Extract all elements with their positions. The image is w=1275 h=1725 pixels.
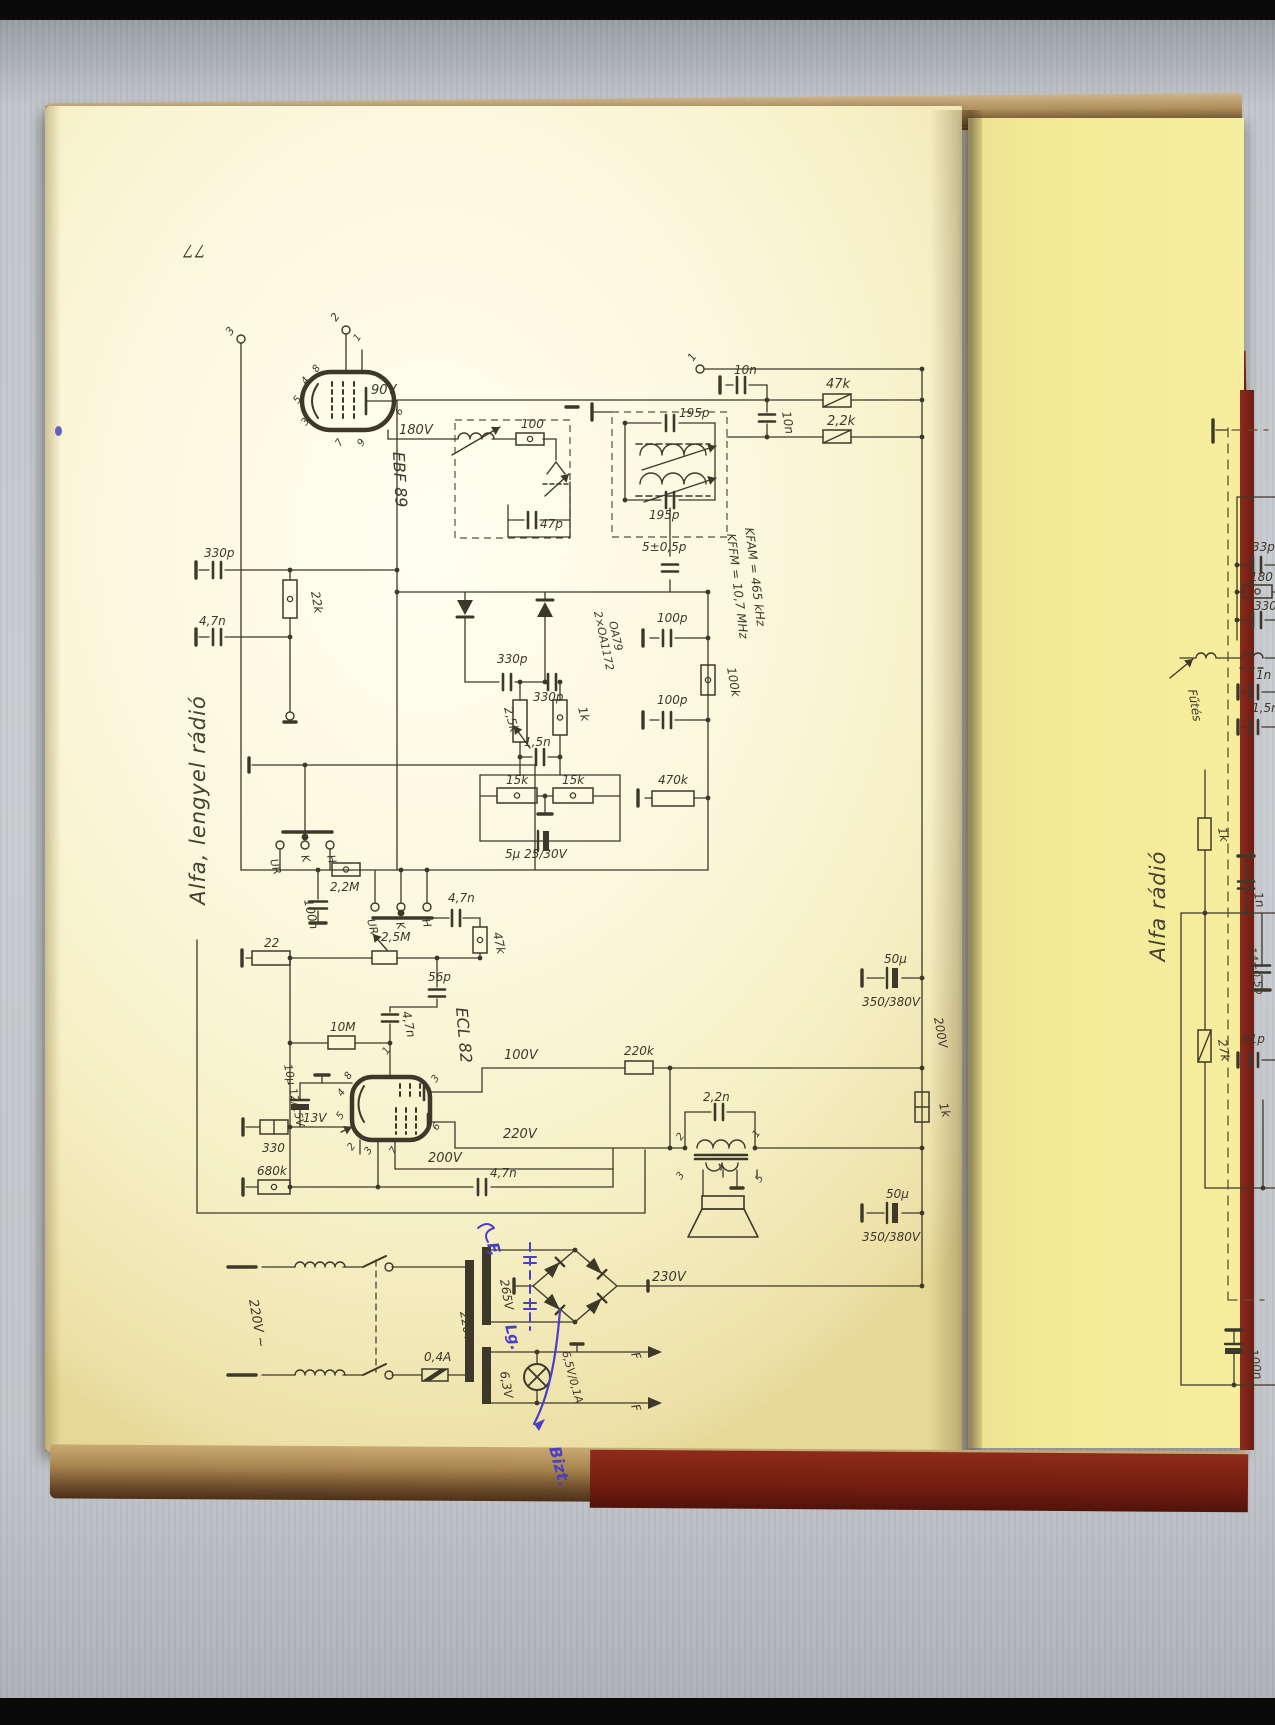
junction-dot <box>518 680 523 685</box>
junction-dot <box>1235 590 1240 595</box>
electrolytic <box>892 968 898 988</box>
schematic-label: 5±0,5p <box>642 540 687 554</box>
schematic-label: 1k <box>936 1101 954 1120</box>
resistor <box>497 788 537 803</box>
schematic-label: 22k <box>308 590 326 615</box>
speaker <box>702 1196 744 1209</box>
symbol <box>295 1370 345 1375</box>
symbol <box>640 444 706 455</box>
symbol <box>457 600 473 615</box>
schematic-label: 1n <box>1251 891 1267 908</box>
schematic-label: 180V <box>399 423 434 438</box>
schematic-label: 330p <box>533 690 564 704</box>
junction-dot <box>920 1284 925 1289</box>
handwritten-note: F, <box>483 1240 505 1258</box>
schematic-label: ECL 82 <box>452 1007 476 1064</box>
terminal <box>237 335 245 343</box>
schematic-label: 10M <box>330 1020 356 1034</box>
wire <box>363 1364 386 1375</box>
resistor <box>271 1184 276 1189</box>
symbol <box>688 1209 758 1237</box>
junction-dot <box>518 755 523 760</box>
schematic-label: 100V <box>504 1048 539 1063</box>
handwritten-note: Bizt. <box>545 1444 574 1488</box>
schematic-label: 0,4A <box>424 1350 451 1364</box>
schematic-label: 90V <box>371 383 398 398</box>
symbol <box>697 1140 745 1148</box>
symbol <box>544 1262 560 1278</box>
junction-dot <box>920 1211 925 1216</box>
schematic-label: 6,3V <box>497 1370 516 1400</box>
schematic-label: 7 <box>333 437 346 449</box>
terminal <box>326 841 334 849</box>
schematic-label: 2,5k <box>501 705 522 735</box>
resistor <box>652 791 694 806</box>
junction-dot <box>920 976 925 981</box>
schematic-label: Fűtés <box>1185 688 1204 722</box>
junction-dot <box>425 868 430 873</box>
symbol <box>534 1310 560 1424</box>
junction-dot <box>920 398 925 403</box>
symbol <box>312 384 318 418</box>
wire <box>823 394 851 407</box>
schematic-label: 4,7n <box>399 1010 418 1039</box>
schematic-label: 6 <box>393 406 406 418</box>
junction-dot <box>683 1146 688 1151</box>
schematic-label: 27k <box>1215 1038 1233 1063</box>
terminal <box>276 841 284 849</box>
symbol <box>295 1262 345 1267</box>
schematic-label: 200V <box>428 1151 463 1166</box>
schematic-label: 2 <box>345 1141 358 1153</box>
schematic-label: 10n <box>779 410 797 435</box>
junction-dot <box>1203 911 1208 916</box>
schematic-label: 200V <box>931 1016 950 1050</box>
junction-dot <box>395 590 400 595</box>
schematic-label: 350/380V <box>862 1230 921 1244</box>
schematic-label: 2,2M <box>330 880 360 894</box>
junction-dot <box>543 680 548 685</box>
symbol <box>1196 653 1216 658</box>
schematic-label: 2,2k <box>827 414 856 429</box>
junction-dot <box>288 635 293 640</box>
schematic-label: 2 <box>328 311 343 324</box>
schematic-label: 33p <box>1252 540 1275 554</box>
schematic-label: 100k <box>724 666 743 699</box>
schematic-label: 680k <box>257 1164 288 1178</box>
schematic-label: 330p <box>1254 599 1275 613</box>
schematic-label: 56p <box>428 970 451 984</box>
resistor <box>287 596 292 601</box>
transformer-secondary-heater <box>482 1347 491 1404</box>
schematic-label: UR <box>364 917 381 936</box>
schematic-label: 330 <box>262 1141 285 1155</box>
wire <box>363 1256 386 1267</box>
wire <box>823 430 851 443</box>
junction-dot <box>535 1401 540 1406</box>
junction-dot <box>558 680 563 685</box>
junction-dot <box>1235 618 1240 623</box>
switch-contact <box>398 910 405 917</box>
schematic-label: 7 <box>387 1145 400 1157</box>
junction-dot <box>706 796 711 801</box>
junction-dot <box>765 398 770 403</box>
schematic-label: 6,5V/0,1A <box>559 1349 585 1404</box>
junction-dot <box>303 763 308 768</box>
symbol <box>478 1224 494 1242</box>
junction-dot <box>388 1041 393 1046</box>
symbol <box>537 602 553 617</box>
junction-dot <box>920 1066 925 1071</box>
wire <box>452 427 500 455</box>
schematic-label: K <box>298 853 313 864</box>
symbol <box>586 1298 602 1314</box>
schematic-label: 4 <box>335 1087 348 1099</box>
schematic-label: 220V <box>503 1127 538 1142</box>
junction-dot <box>623 498 628 503</box>
schematic-label: 4,7n <box>490 1166 517 1180</box>
resistor <box>258 1180 290 1194</box>
resistor <box>553 788 593 803</box>
transformer-secondary-hv <box>482 1247 491 1325</box>
schematic-label: F <box>628 1402 644 1414</box>
junction-dot <box>1235 563 1240 568</box>
junction-dot <box>543 794 548 799</box>
resistor <box>328 1036 355 1049</box>
schematic-label: 22 <box>264 936 279 950</box>
schematic-drawing: 32190V180VEBF 891845379610047p195p195p5±… <box>0 0 1275 1725</box>
junction-dot <box>376 1185 381 1190</box>
terminal <box>301 841 309 849</box>
junction-dot <box>1261 1186 1266 1191</box>
schematic-label: 220k <box>624 1044 655 1058</box>
resistor <box>1243 585 1272 598</box>
schematic-label: 100 <box>521 417 544 431</box>
symbol <box>586 1258 602 1274</box>
junction-dot <box>288 1125 293 1130</box>
resistor <box>527 436 532 441</box>
schematic-label: 470k <box>658 773 689 787</box>
schematic-label: 47k <box>826 377 851 392</box>
schematic-label: 350/380V <box>862 995 921 1009</box>
junction-dot <box>573 1248 578 1253</box>
schematic-label: 100p <box>657 693 688 707</box>
schematic-label: 47p <box>540 517 563 531</box>
schematic-label: 1k <box>1215 826 1232 844</box>
schematic-label: 100n <box>1246 1348 1265 1380</box>
handwritten-note: Lg. <box>501 1322 525 1352</box>
schematic-label: 50μ <box>886 1187 909 1201</box>
schematic-label: UR <box>267 857 284 876</box>
junction-dot <box>288 1041 293 1046</box>
schematic-label: 91p <box>1242 1032 1265 1046</box>
electrolytic <box>1225 1348 1243 1354</box>
schematic-label: 1,5n <box>1252 701 1275 715</box>
schematic-label: 230V <box>652 1270 687 1285</box>
junction-dot <box>395 568 400 573</box>
junction-dot <box>316 868 321 873</box>
symbol <box>648 1346 662 1358</box>
junction-dot <box>399 868 404 873</box>
resistor <box>553 700 567 735</box>
resistor <box>516 433 544 445</box>
junction-dot <box>1232 1383 1237 1388</box>
schematic-label: 3 <box>223 325 238 338</box>
schematic-label: 1 <box>380 1045 393 1057</box>
schematic-label: 2,5M <box>381 930 411 944</box>
junction-dot <box>1244 911 1249 916</box>
wire <box>1198 1030 1211 1062</box>
schematic-label: 8 <box>342 1070 355 1082</box>
junction-dot <box>753 1146 758 1151</box>
schematic-label: EBF 89 <box>389 451 411 508</box>
schematic-label: 15k <box>562 773 585 787</box>
junction-dot <box>706 636 711 641</box>
resistor <box>1255 589 1260 594</box>
terminal <box>423 903 431 911</box>
schematic-label: 195p <box>649 508 680 522</box>
schematic-label: 10n <box>734 363 757 377</box>
junction-dot <box>478 956 483 961</box>
terminal <box>342 326 350 334</box>
junction-dot <box>706 590 711 595</box>
resistor <box>477 937 482 942</box>
resistor <box>1198 818 1211 850</box>
schematic-label: 195p <box>679 406 710 420</box>
resistor <box>372 951 397 964</box>
schematic-label: 3 <box>429 1073 442 1085</box>
symbol <box>648 1397 662 1409</box>
junction-dot <box>920 435 925 440</box>
junction-dot <box>288 1185 293 1190</box>
schematic-label: 330p <box>497 652 528 666</box>
schematic-label: 6 <box>430 1121 443 1133</box>
resistor <box>473 927 487 953</box>
wire <box>547 462 556 474</box>
symbol <box>422 1369 448 1381</box>
junction-dot <box>288 568 293 573</box>
schematic-label: 2,2n <box>703 1090 730 1104</box>
schematic-label: 180 <box>1250 570 1273 584</box>
terminal <box>696 365 704 373</box>
schematic-label: 3 <box>674 1170 687 1182</box>
schematic-label: 100p <box>657 611 688 625</box>
resistor <box>514 793 519 798</box>
junction-dot <box>435 956 440 961</box>
junction-dot <box>573 1320 578 1325</box>
schematic-label: 47k <box>490 931 509 957</box>
schematic-label: 1n <box>1256 668 1271 682</box>
schematic-label: 1 <box>685 351 700 364</box>
electrolytic <box>892 1203 898 1223</box>
wire <box>642 446 716 470</box>
symbol <box>533 1250 617 1322</box>
schematic-label: 1,5n <box>524 735 551 749</box>
resistor <box>625 1061 653 1074</box>
schematic-label: 3 <box>362 1145 375 1157</box>
switch-contact <box>302 834 309 841</box>
schematic-label: 5 <box>753 1173 766 1185</box>
scanned-book-page: 77 Alfa, lengyel rádió Alfa rádió 32190V… <box>0 0 1275 1725</box>
schematic-label: 15k <box>506 773 529 787</box>
symbol <box>1243 653 1263 658</box>
schematic-label: 14±0,5p <box>1245 946 1266 995</box>
resistor <box>252 951 290 965</box>
schematic-label: 9 <box>355 437 368 449</box>
schematic-label: 220V ~ <box>245 1298 268 1349</box>
junction-dot <box>288 956 293 961</box>
junction-dot <box>558 755 563 760</box>
schematic-label: 4,7n <box>199 614 226 628</box>
junction-dot <box>765 435 770 440</box>
junction-dot <box>535 1350 540 1355</box>
schematic-label: 1 <box>750 1128 763 1140</box>
scan-bottom-black-bar <box>0 1698 1275 1725</box>
symbol <box>544 1294 560 1310</box>
schematic-label: 50μ <box>884 952 907 966</box>
schematic-label: 4,7n <box>448 891 475 905</box>
schematic-label: 330p <box>204 546 235 560</box>
junction-dot <box>668 1066 673 1071</box>
junction-dot <box>920 367 925 372</box>
schematic-label: 4 <box>299 375 312 387</box>
wire <box>556 462 565 474</box>
symbol <box>1184 659 1193 667</box>
resistor <box>570 793 575 798</box>
junction-dot <box>706 718 711 723</box>
resistor <box>557 715 562 720</box>
junction-dot <box>623 421 628 426</box>
terminal <box>371 903 379 911</box>
resistor <box>283 580 297 618</box>
symbol <box>640 473 706 484</box>
schematic-label: 5 <box>334 1110 347 1122</box>
schematic-label: 5μ 25/30V <box>505 847 568 861</box>
junction-dot <box>920 1146 925 1151</box>
terminal <box>286 712 294 720</box>
schematic-label: 1k <box>575 705 593 724</box>
symbol <box>359 1086 365 1122</box>
junction-dot <box>668 1146 673 1151</box>
wire <box>644 478 716 502</box>
schematic-label: 1 <box>351 332 364 344</box>
